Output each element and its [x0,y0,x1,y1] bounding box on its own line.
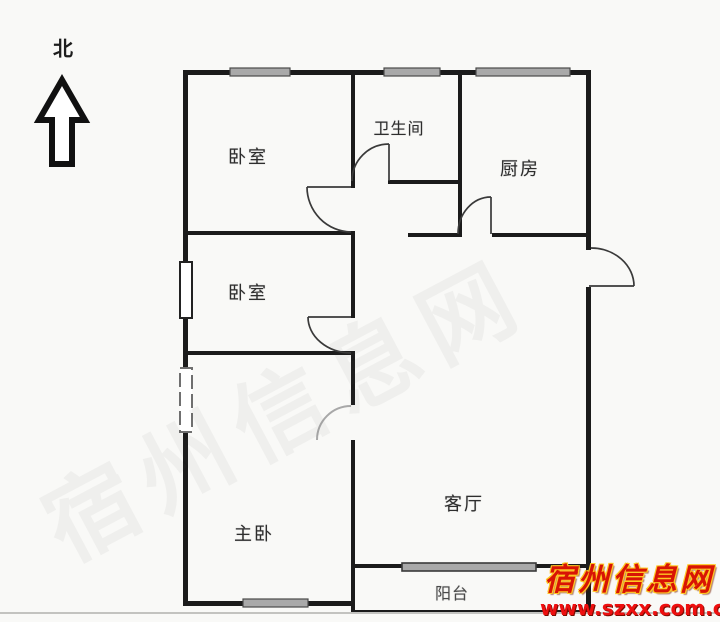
floorplan-drawing [0,0,720,622]
wall-kitchen-south-left [408,233,461,237]
wall-hall-divider-seg3 [351,352,355,405]
photo-edge-line [0,612,720,614]
door-arc-bathroom [352,144,389,181]
room-label-balcony: 阳台 [435,580,469,604]
window-master-left [180,368,192,432]
north-arrow-icon [39,80,85,164]
door-arc-master [317,406,351,440]
window-kitchen [476,68,570,76]
window-bedroom-middle-left [180,262,192,318]
room-label-living-room: 客厅 [444,490,484,516]
door-arc-kitchen [458,197,491,234]
room-label-master-bedroom: 主卧 [234,520,274,546]
wall-hall-divider-seg4 [351,440,355,614]
door-arc-entry [591,248,634,286]
wall-left-exterior [183,70,188,606]
sliding-door-balcony [402,563,536,571]
window-master [243,599,308,607]
wall-bathroom-kitchen-divider [458,70,462,237]
door-arc-bedroom-middle [308,317,351,353]
wall-bedroom-top-south [183,231,355,235]
wall-living-south-right [534,564,591,568]
room-label-bedroom-middle: 卧室 [228,279,268,305]
doors [307,144,634,440]
wall-bathroom-south [388,180,461,184]
wall-kitchen-south-right [492,233,591,237]
room-label-kitchen: 厨房 [500,155,540,181]
wall-living-south-left [351,564,406,568]
room-label-bathroom: 卫生间 [373,115,424,139]
window-bedroom-top [230,68,290,76]
floorplan-image: 北 卧室 卫生间 厨房 卧室 主卧 客厅 阳台 宿州信息网 宿州信息网 www.… [0,0,720,622]
wall-bedroom-middle-south [183,351,355,355]
wall-right-exterior-upper [586,70,591,250]
door-arc-bedroom-top [307,187,351,232]
wall-hall-divider-seg2 [351,232,355,318]
north-label: 北 [53,33,73,62]
window-bathroom [384,68,440,76]
room-label-bedroom-top: 卧室 [228,143,268,169]
